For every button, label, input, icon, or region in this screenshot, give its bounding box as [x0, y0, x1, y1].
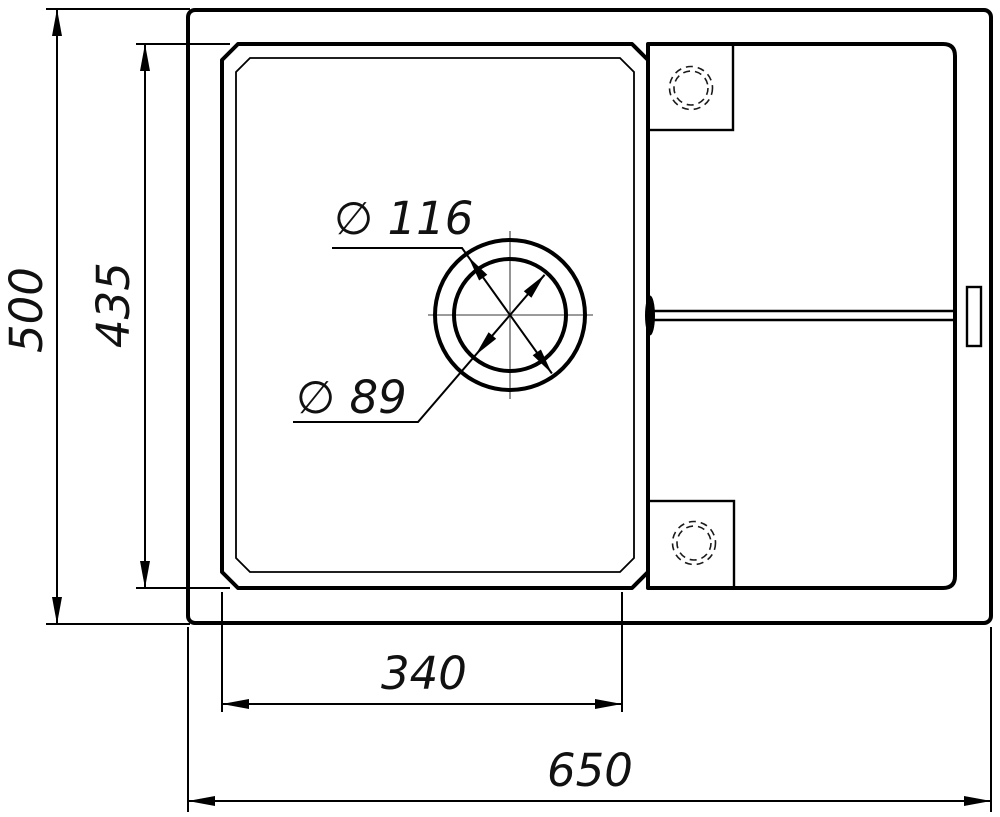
tap-platform-bottom: [648, 501, 734, 588]
tap-hole-top-inner-circle: [674, 71, 708, 105]
label-drain-outer-diameter: ∅ 116: [334, 192, 473, 245]
tap-hole-bottom-inner-circle: [677, 526, 711, 560]
overflow-slot: [967, 287, 981, 346]
dim-bowl-height: 435: [87, 44, 230, 588]
dim-340-arrow-left: [222, 699, 249, 709]
label-overall-width: 650: [547, 744, 633, 797]
dim-500-arrow-down: [52, 597, 62, 624]
dim-435-arrow-down: [140, 561, 150, 588]
tap-platform-top: [648, 44, 733, 130]
dim-435-arrow-up: [140, 44, 150, 71]
dim-500-arrow-up: [52, 9, 62, 36]
dim-650-arrow-right: [964, 796, 991, 806]
label-drain-inner-diameter: ∅ 89: [296, 371, 407, 424]
drainboard-groove: [645, 296, 953, 336]
dim-overall-width: 650: [188, 627, 991, 812]
dim-340-arrow-right: [595, 699, 622, 709]
tap-hole-bottom: [648, 501, 734, 588]
groove-end-cap: [645, 296, 655, 336]
dim-drain-inner: ∅ 89: [293, 275, 545, 424]
label-bowl-height: 435: [87, 262, 140, 348]
tap-hole-top-outer-circle: [670, 67, 713, 110]
dim-bowl-width: 340: [222, 592, 622, 712]
dim-650-arrow-left: [188, 796, 215, 806]
tap-hole-bottom-outer-circle: [673, 522, 716, 565]
tap-hole-top: [648, 44, 733, 130]
drainboard: [648, 44, 955, 588]
dim-drain-outer-leader: [332, 248, 552, 374]
label-overall-height: 500: [0, 267, 53, 353]
sink-outer-rim: [188, 10, 991, 623]
label-bowl-width: 340: [381, 647, 467, 700]
sink-dimension-drawing: ∅ 116 ∅ 89 500 435 340: [0, 0, 1000, 817]
